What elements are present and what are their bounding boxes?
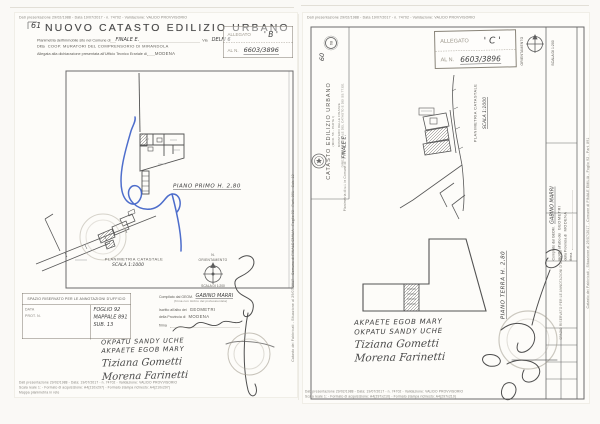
name-line: Morena Farinetti (354, 350, 446, 364)
compiled-by-note: (firma con timbro del professionista) (174, 300, 264, 303)
annotations-table: SPAZIO RISERVATO PER LE ANNOTAZIONI D'UF… (22, 293, 131, 339)
name-line: OKPATU SANDY UCHE (354, 327, 445, 337)
state-emblem-icon (312, 154, 326, 168)
compiled-by-label: Compilato dal GEOM. (552, 226, 556, 260)
microprint-side: Catasto dei Fabbricati - Situazione al 2… (586, 138, 590, 309)
round-stamp (499, 311, 557, 369)
albo-label: Iscritto all'albo dei (159, 309, 187, 313)
compass-label: ORIENTAMENTO (520, 37, 524, 66)
annot-sub: SUB. 13 (93, 322, 127, 328)
firma-label: firma (569, 253, 573, 261)
firma-label: firma (159, 324, 167, 328)
compass-icon (526, 35, 544, 53)
microprint-side: Catasto dei Fabbricati - Situazione al 2… (291, 174, 295, 362)
annot-foglio: FOGLIO 92 (93, 307, 127, 313)
microprint-bottom-1: Dati presentazione 29/02/1988 - Data: 19… (305, 390, 463, 394)
field1-label: Planimetria dell'immobile sito nel Comun… (37, 38, 110, 43)
field3-value: MODENA (155, 51, 175, 56)
left-page: Dati presentazione 29/02/1988 - Data 19/… (14, 12, 298, 398)
main-frame (66, 71, 293, 288)
microprint-bottom-1: Dati presentazione 29/02/1988 - Data: 19… (19, 381, 177, 385)
name-line: AKPAETE EGOB MARY (354, 317, 445, 327)
microprint-top: Dati presentazione 29/02/1988 - Data 19/… (307, 16, 475, 20)
al-n-label: AL N. (441, 57, 455, 63)
field1b-label: Via (202, 38, 207, 43)
admin-title: CATASTO EDILIZIO URBANO (325, 66, 331, 196)
compass-north-label: N. (211, 253, 215, 257)
badge-number: 68 (329, 41, 334, 45)
annotations-header: SPAZIO RISERVATO PER LE ANNOTAZIONI D'UF… (27, 297, 125, 301)
compiler-block: Compilato dal GEOM. GABINO MARRI (firma … (159, 293, 264, 328)
plan-caption: PIANO PRIMO H. 2,80 (173, 181, 241, 190)
field3-label: Allegata alla dichiarazione presentata a… (37, 52, 147, 57)
allegato-value: ' C ' (484, 35, 501, 46)
province-value: MODENA (188, 314, 209, 319)
faint-stamp (80, 214, 126, 260)
field2-label: Ditta (37, 44, 45, 49)
scanned-document-canvas: Dati presentazione 29/02/1988 - Data 19/… (0, 0, 600, 424)
scan-edge-line-left (10, 7, 294, 8)
scan-edge-line-right (301, 5, 589, 6)
annot-mappale: MAPPALE 891 (93, 315, 127, 321)
strip-scale-label: SCALA DI 1:200 (551, 40, 555, 65)
strip-annotations-header: SPAZIO RISERVATO PER LE ANNOTAZIONI D'UF… (559, 250, 563, 340)
plan-caption: PIANO TERRA H. 2,80 (500, 251, 507, 319)
right-page: Dati presentazione 29/02/1988 - Data 19/… (302, 12, 590, 404)
compiled-by-label: Compilato dal GEOM. (159, 296, 193, 300)
albo-value: GEOMETRI (190, 307, 216, 312)
round-stamp (228, 333, 270, 375)
site-plan-caption: PLANIMETRIA CATASTALE (105, 257, 163, 262)
name-line: Tiziana Gometti (101, 355, 188, 369)
handwritten-names: OKPATU SANDY UCHE AKPAETE EGOB MARY Tizi… (101, 337, 188, 383)
admin-sub-label: Planimetria di u.i. in Comune di (343, 162, 347, 212)
compass-scale-label: SCALA DI 1:200 (201, 284, 225, 288)
province-label: della Provincia di (159, 316, 185, 320)
al-n-label: AL N. (228, 48, 239, 53)
document-number: 61 (31, 21, 41, 30)
page-gap-line (298, 14, 299, 400)
al-n-value: 6603/3896 (244, 47, 279, 55)
admin-sub-line: Planimetria di u.i. in Comune di FINALE … (341, 135, 347, 212)
microprint-bottom-2: Scala reale 1: - Formato di acquisizione… (19, 386, 170, 390)
annot-prot-label: PROT. N. (25, 315, 87, 319)
compass-icon (203, 263, 223, 284)
allegato-stamp-box: ALLEGATO ' B ' AL N. 6603/3896 (223, 26, 293, 58)
outer-frame (311, 27, 584, 399)
admin-title-block: CATASTO EDILIZIO URBANO (MOD. 58 - PARTE… (325, 66, 335, 196)
allegato-stamp-box: ALLEGATO ' C ' AL N. 6603/3896 (434, 29, 517, 69)
microprint-top: Dati presentazione 29/02/1988 - Data 19/… (19, 16, 187, 20)
floor-plan-drawing (139, 73, 184, 194)
strip-compiler-block: Compilato dal GEOM. GABINO MARRI Iscritt… (549, 146, 573, 261)
document-number: 60 (318, 53, 326, 61)
floor-plan-drawing (363, 239, 486, 311)
signature-scribble (483, 249, 562, 399)
compiled-by-name: GABINO MARRI (549, 186, 555, 224)
name-line: AKPAETE EGOB MARY (101, 345, 188, 355)
microprint-bottom-3: Mappa planimetria in rete (19, 391, 59, 395)
al-n-value: 6603/3896 (460, 54, 501, 64)
province-label: della Provincia di (564, 234, 568, 260)
handwritten-names: AKPAETE EGOB MARY OKPATU SANDY UCHE Tizi… (354, 317, 445, 364)
site-plan-scale: SCALA 1:1000 (482, 97, 488, 129)
albo-value: GEOMETRI (557, 206, 562, 231)
allegato-label: ALLEGATO (440, 38, 469, 45)
name-line: Tiziana Gometti (354, 337, 446, 351)
site-plan-caption: PLANIMETRIA CATASTALE (473, 84, 478, 142)
field1-value: FINALE E. (115, 37, 139, 43)
site-plan-scale: SCALA 1:1000 (112, 263, 144, 268)
field2-value: COOP. MURATORI DEL COMPRENSORIO DI MIRAN… (48, 44, 169, 49)
admin-mod: (MOD. 58 - PARTE I) (332, 66, 335, 196)
site-plan-drawing (400, 75, 465, 219)
allegato-value: ' B ' (264, 30, 278, 39)
annot-data-label: DATA (25, 308, 87, 312)
compass-label: ORIENTAMENTO (199, 258, 228, 262)
admin-sub-value: FINALE E. (341, 135, 347, 159)
allegato-label: ALLEGATO (228, 32, 251, 37)
microprint-bottom-2: Scala reale 1: - Formato di acquisizione… (305, 395, 456, 399)
compiled-by-name: GABINO MARRI (196, 293, 234, 299)
province-value: MODENA (563, 212, 568, 232)
